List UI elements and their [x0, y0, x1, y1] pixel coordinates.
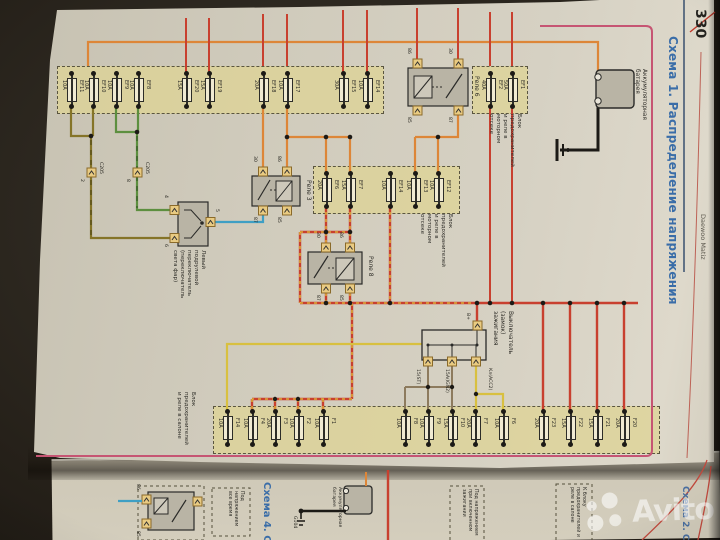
ignition-pin: 15A(IGN2) [444, 369, 450, 393]
fuse: 10AEF11 [67, 78, 77, 102]
fuse: 10AF6 [499, 416, 509, 440]
fuse: 10AF4 [248, 416, 258, 440]
ignition-pin: Кл(АСС2) [487, 368, 493, 390]
fuse: 20AF3 [271, 416, 281, 440]
watermark-text: Avito [631, 491, 714, 529]
relay-3-pin: 87 [252, 217, 258, 223]
relay-8-pin: 86 [338, 232, 344, 238]
avito-logo-icon [581, 489, 629, 537]
fuse: 40AEF2 [486, 78, 496, 102]
engine-fusebox-label-2: Блок предохранителей и реле в моторном о… [418, 214, 453, 264]
fuse: 15AEF20 [182, 78, 192, 102]
page-number: 330 [691, 9, 708, 38]
next-page-relay-pin: 85 [135, 531, 141, 537]
fuse: 10AF2 [294, 416, 304, 440]
note-box-label: Под напряжением все время [226, 491, 244, 533]
fuse: 15AEF19 [205, 78, 215, 102]
relay-6-label: Реле 6 [473, 76, 480, 97]
column-switch-symbol [170, 202, 215, 246]
fuse: 10AEF14 [386, 178, 396, 202]
fuse: 10AF14 [223, 416, 233, 440]
relay-8-symbol [308, 243, 362, 293]
yellow-wires [227, 344, 503, 411]
fuse: 20AF7 [471, 416, 481, 440]
fuse: 15AF22 [566, 416, 576, 440]
relay-6-symbol [408, 59, 468, 115]
fuse: 10AEF8 [134, 78, 144, 102]
fuse: 20AF23 [539, 416, 549, 440]
relay-6-pin: 86 [406, 48, 412, 54]
column-switch-label: Левый подрулевой переключатель (переключ… [171, 250, 206, 302]
fuse: 30AEF15 [339, 78, 349, 102]
brand-header: Daewoo Matiz [698, 214, 706, 260]
switch-pin: 5 [214, 209, 220, 212]
page-title: Схема 1. Распределение напряжения [666, 36, 680, 305]
relay-8-pin: 85 [338, 295, 344, 301]
fuse: 10AF1 [319, 416, 329, 440]
battery-symbol [560, 70, 634, 150]
battery-label: Аккумуляторная батарея [633, 69, 647, 117]
next-page-relay-pin: 86 [135, 484, 141, 490]
connector-label: C205 [144, 162, 150, 174]
fuse: 10AEF14 [363, 78, 373, 102]
next-page-battery-label: Аккумуляторная батарея [331, 487, 342, 523]
ground-label: G104 [292, 516, 298, 528]
ignition-label: Выключатель (замок) зажигания [492, 311, 515, 369]
fuse: 20AEF6 [322, 178, 332, 202]
relay-6-pin: 30 [447, 48, 453, 54]
relay-8-pin: 87 [315, 295, 321, 301]
next-page-title: Схема 4. С [260, 482, 272, 540]
fuse: 15AEF7 [346, 178, 356, 202]
fuse: 15AF10 [448, 416, 458, 440]
fuse: 10AEF12 [434, 178, 444, 202]
book-photo: 330 Схема 1. Распределение напряжения Da… [0, 0, 720, 540]
relay-3-pin: 85 [276, 217, 282, 223]
relay-8-pin: 30 [315, 232, 321, 238]
switch-pin: 6 [163, 244, 169, 247]
fuse: 10AEF10 [89, 78, 99, 102]
fuse: 10AF9 [424, 416, 434, 440]
ignition-pin: B+ [465, 313, 471, 320]
fuse: 10AEF13 [411, 178, 421, 202]
page-edge-shade [708, 0, 720, 540]
olive-wires [71, 105, 170, 238]
relay-6-pin: 87 [447, 117, 453, 123]
fuse: 10AEF9 [112, 78, 122, 102]
engine-fusebox-label: Блок предохранителей и реле в моторном о… [487, 114, 522, 164]
relay-3-pin: 86 [276, 156, 282, 162]
relay-3-pin: 30 [252, 156, 258, 162]
connector-pin: 2 [79, 179, 85, 182]
connector-symbols [87, 168, 142, 177]
relay-6-pin: 85 [406, 117, 412, 123]
fuse: 50AEF1 [508, 78, 518, 102]
watermark: Avito [581, 485, 720, 538]
ignition-switch-symbol [422, 321, 486, 366]
fuse: 20AEF18 [259, 78, 269, 102]
fuse: 15AF21 [593, 416, 603, 440]
relay-8-label: Реле 8 [367, 256, 374, 277]
relay-3-label: Реле 3 [305, 180, 312, 201]
connector-pin: 8 [125, 179, 131, 182]
fuse: 10AEF17 [283, 78, 293, 102]
fuse: 20AF20 [620, 416, 630, 440]
connector-label: C205 [98, 162, 104, 174]
fuse: 10AF8 [401, 416, 411, 440]
ignition-pin: 15(ST) [415, 369, 421, 384]
switch-pin: 4 [163, 195, 169, 198]
cabin-fusebox-label: Блок предохранителей и реле в салоне [175, 392, 196, 444]
relay-3-symbol [252, 167, 300, 215]
note-box-label: Под напряжением при включенном зажигании [460, 489, 478, 539]
